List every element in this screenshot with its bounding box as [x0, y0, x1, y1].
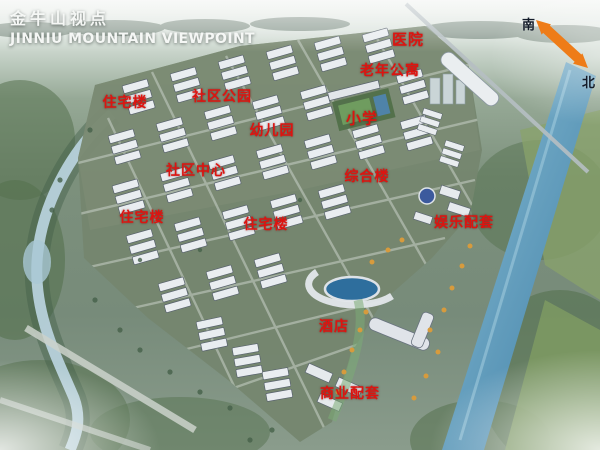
title-block: 金牛山视点 JINNIU MOUNTAIN VIEWPOINT: [10, 5, 255, 47]
compass: 南 北: [516, 6, 600, 92]
map-label-commercial-facilities: 商业配套: [320, 383, 380, 403]
map-label-residential-1: 住宅楼: [103, 92, 148, 112]
compass-north-label: 北: [582, 72, 595, 91]
map-label-community-park: 社区公园: [192, 86, 252, 106]
map-label-hotel: 酒店: [319, 316, 349, 336]
page-title-zh: 金牛山视点: [10, 5, 255, 29]
page-title-en: JINNIU MOUNTAIN VIEWPOINT: [10, 31, 255, 47]
map-illustration: [0, 0, 600, 450]
map-label-kindergarten: 幼儿园: [250, 120, 295, 140]
map-label-entertainment-facilities: 娱乐配套: [434, 212, 494, 232]
map-label-residential-2: 住宅楼: [120, 207, 165, 227]
map-label-primary-school: 小学: [346, 108, 378, 129]
pond-west: [23, 240, 51, 284]
map-label-hospital: 医院: [392, 29, 424, 50]
compass-south-label: 南: [522, 14, 535, 33]
map-label-residential-3: 住宅楼: [244, 214, 289, 234]
aerial-rendering-view: 金牛山视点 JINNIU MOUNTAIN VIEWPOINT 南 北 医院 老…: [0, 0, 600, 450]
central-lake: [325, 277, 379, 301]
map-label-community-center: 社区中心: [166, 160, 226, 180]
map-label-complex-building: 综合楼: [345, 166, 390, 186]
map-label-senior-apartments: 老年公寓: [360, 60, 420, 80]
